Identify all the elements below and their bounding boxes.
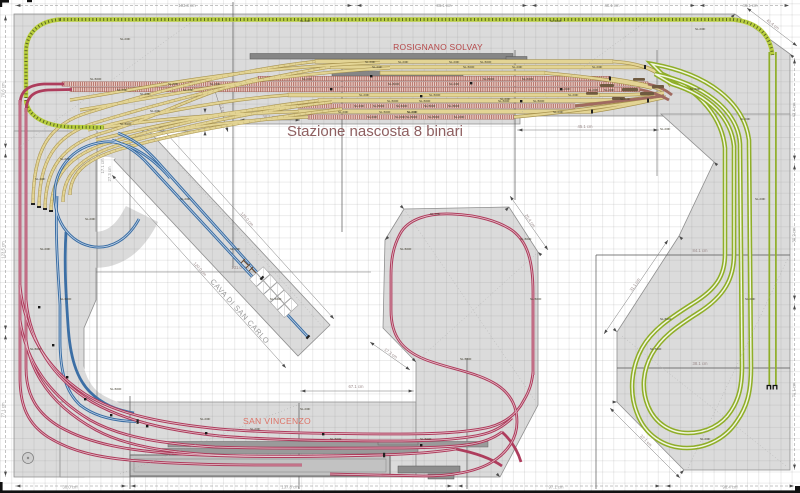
svg-text:SL-D0F: SL-D0F — [700, 437, 711, 441]
svg-text:SL-D0F: SL-D0F — [300, 407, 311, 411]
svg-text:SL-500F: SL-500F — [650, 347, 662, 351]
svg-text:SL-D0F: SL-D0F — [740, 117, 751, 121]
svg-text:45.1 cm: 45.1 cm — [578, 124, 593, 129]
svg-text:SL-D0F: SL-D0F — [354, 104, 365, 108]
svg-text:SL-500F: SL-500F — [120, 122, 132, 126]
svg-text:43.4 cm: 43.4 cm — [792, 102, 797, 117]
svg-text:SL-500F: SL-500F — [424, 104, 436, 108]
svg-text:SL-D0F: SL-D0F — [183, 88, 194, 92]
svg-text:SL-D0F: SL-D0F — [553, 110, 564, 114]
svg-text:70.6 cm: 70.6 cm — [1, 82, 6, 97]
svg-text:SL-500F: SL-500F — [448, 104, 460, 108]
svg-text:103.8 cm: 103.8 cm — [178, 3, 196, 8]
svg-text:SL-D0F: SL-D0F — [180, 197, 191, 201]
svg-text:SL-500F: SL-500F — [400, 247, 412, 251]
svg-text:SL-D0F: SL-D0F — [398, 60, 409, 64]
svg-text:SL-D0F: SL-D0F — [168, 82, 179, 86]
svg-text:SL-D0F: SL-D0F — [35, 177, 46, 181]
svg-text:SL-500F: SL-500F — [428, 115, 440, 119]
svg-text:SL-500F: SL-500F — [483, 77, 495, 81]
svg-text:SL-D0F: SL-D0F — [568, 93, 579, 97]
svg-text:SL-D0F: SL-D0F — [407, 110, 418, 114]
svg-text:SL-D0F: SL-D0F — [512, 65, 523, 69]
svg-text:SL-500F: SL-500F — [533, 99, 545, 103]
svg-text:SL-D0F: SL-D0F — [140, 92, 151, 96]
svg-text:77.1 cm: 77.1 cm — [1, 402, 6, 417]
svg-text:SL-D0F: SL-D0F — [359, 93, 370, 97]
svg-text:SL-D0F: SL-D0F — [500, 97, 511, 101]
svg-text:SL-500F: SL-500F — [270, 297, 282, 301]
svg-text:46.1 cm: 46.1 cm — [743, 3, 758, 8]
svg-text:SL-500F: SL-500F — [520, 237, 532, 241]
svg-text:SL-500F: SL-500F — [429, 93, 441, 97]
svg-text:30.2 cm: 30.2 cm — [792, 227, 797, 242]
svg-text:SL-500F: SL-500F — [550, 19, 562, 23]
svg-text:SL-D0F: SL-D0F — [250, 427, 261, 431]
svg-text:SL-500F: SL-500F — [660, 317, 672, 321]
svg-text:98.4 cm: 98.4 cm — [723, 485, 738, 490]
svg-text:SL-D0F: SL-D0F — [660, 127, 671, 131]
svg-text:27.3 cm: 27.3 cm — [107, 166, 112, 181]
svg-text:SL-500F: SL-500F — [530, 297, 542, 301]
svg-text:137.8 cm: 137.8 cm — [281, 485, 299, 490]
svg-text:SL-500F: SL-500F — [463, 65, 475, 69]
svg-text:SL-D0F: SL-D0F — [230, 247, 241, 251]
svg-text:Stazione nascosta 8 binari: Stazione nascosta 8 binari — [287, 123, 463, 140]
svg-text:SL-D0F: SL-D0F — [120, 37, 131, 41]
svg-text:30.0 cm: 30.0 cm — [63, 485, 78, 490]
svg-text:SL-D0F: SL-D0F — [117, 88, 128, 92]
svg-text:SAN VINCENZO: SAN VINCENZO — [243, 416, 311, 426]
svg-text:SL-500F: SL-500F — [30, 347, 42, 351]
svg-text:SL-500F: SL-500F — [522, 77, 534, 81]
svg-text:71.1 cm: 71.1 cm — [792, 382, 797, 397]
svg-text:SL-D0F: SL-D0F — [365, 60, 376, 64]
svg-text:SL-D0F: SL-D0F — [592, 65, 603, 69]
svg-text:SL-D0F: SL-D0F — [210, 82, 221, 86]
svg-text:ROSIGNANO SOLVAY: ROSIGNANO SOLVAY — [393, 42, 483, 52]
svg-text:SL-D0F: SL-D0F — [755, 197, 766, 201]
svg-text:SL-500F: SL-500F — [406, 115, 418, 119]
svg-text:SL-D0F: SL-D0F — [200, 417, 211, 421]
svg-text:SL-D0F: SL-D0F — [454, 115, 465, 119]
svg-text:SL-D0F: SL-D0F — [300, 19, 311, 23]
svg-text:SL-500F: SL-500F — [387, 99, 399, 103]
svg-text:SL-500F: SL-500F — [379, 110, 391, 114]
svg-text:123.5 cm: 123.5 cm — [1, 241, 6, 259]
svg-text:SL-D0F: SL-D0F — [620, 97, 631, 101]
svg-text:SL-D0F: SL-D0F — [560, 87, 571, 91]
svg-text:SL-D0F: SL-D0F — [302, 77, 313, 81]
svg-text:SL-500F: SL-500F — [396, 104, 408, 108]
svg-text:SL-D0F: SL-D0F — [745, 297, 756, 301]
svg-text:SL-D0F: SL-D0F — [604, 88, 615, 92]
svg-text:SL-500F: SL-500F — [330, 437, 342, 441]
svg-text:SL-D0F: SL-D0F — [449, 60, 460, 64]
svg-text:SL-500F: SL-500F — [419, 99, 431, 103]
svg-text:SL-D0F: SL-D0F — [449, 82, 460, 86]
svg-text:SL-D0F: SL-D0F — [588, 88, 599, 92]
svg-text:38.1 cm: 38.1 cm — [693, 361, 708, 366]
svg-text:97.1 cm: 97.1 cm — [549, 485, 564, 490]
svg-text:SL-500F: SL-500F — [373, 104, 385, 108]
svg-text:SL-D0F: SL-D0F — [430, 212, 441, 216]
svg-text:SL-D0F: SL-D0F — [367, 115, 378, 119]
svg-text:SL-500F: SL-500F — [420, 437, 432, 441]
svg-text:84.1 cm: 84.1 cm — [693, 248, 708, 253]
svg-text:67.1 cm: 67.1 cm — [349, 384, 364, 389]
svg-text:SL-500F: SL-500F — [480, 60, 492, 64]
svg-text:SL-D0F: SL-D0F — [150, 109, 161, 113]
svg-text:SL-500F: SL-500F — [460, 357, 472, 361]
svg-text:SL-D0F: SL-D0F — [60, 157, 71, 161]
svg-text:SL-500F: SL-500F — [90, 77, 102, 81]
svg-text:SL-D0F: SL-D0F — [395, 115, 406, 119]
svg-text:86.1 cm: 86.1 cm — [437, 3, 452, 8]
svg-text:SL-D0F: SL-D0F — [40, 247, 51, 251]
svg-text:SL-500F: SL-500F — [388, 82, 400, 86]
svg-text:SL-D0F: SL-D0F — [690, 87, 701, 91]
svg-text:40.1 cm: 40.1 cm — [605, 3, 620, 8]
svg-text:SL-500F: SL-500F — [110, 387, 122, 391]
svg-text:17.1 cm: 17.1 cm — [100, 158, 105, 173]
svg-text:SL-D0F: SL-D0F — [338, 110, 349, 114]
svg-text:SL-500F: SL-500F — [60, 297, 72, 301]
svg-text:SL-D0F: SL-D0F — [372, 65, 383, 69]
svg-text:SL-D0F: SL-D0F — [85, 217, 96, 221]
svg-text:SL-D0F: SL-D0F — [695, 27, 706, 31]
